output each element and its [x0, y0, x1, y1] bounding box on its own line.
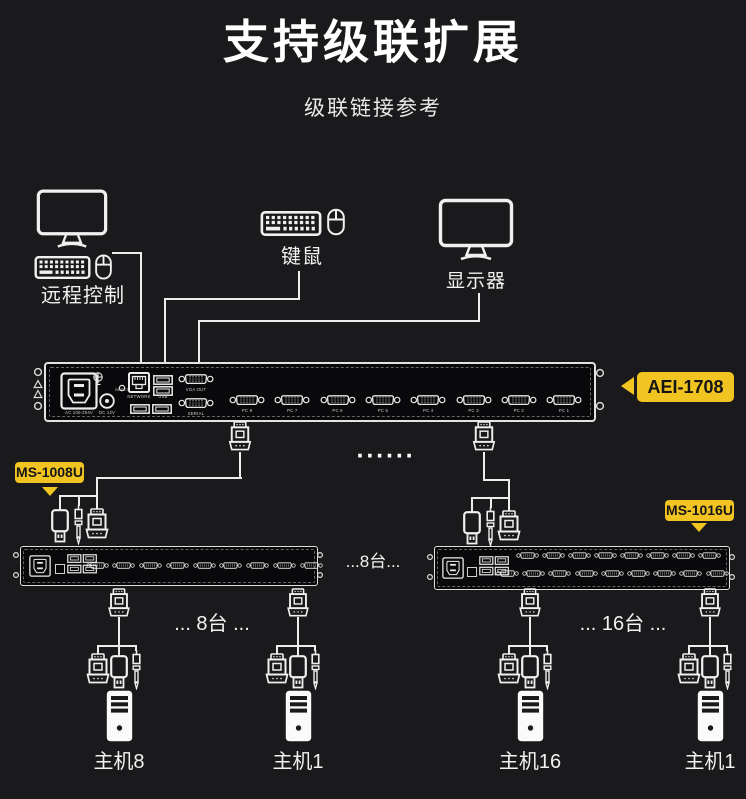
vga-port: [679, 567, 702, 580]
pc-port-label: PC 7: [274, 409, 310, 413]
main-switch-model-badge: AEI-1708: [637, 372, 734, 402]
vga-plug-icon: [697, 588, 723, 618]
pc-port-connector: [274, 392, 310, 408]
vga-port: [193, 559, 216, 572]
pc-port-row: PC 8PC 7PC 6PC 5PC 4PC 3PC 2PC 1: [46, 364, 594, 420]
vga-port: [166, 559, 189, 572]
right-switch-model-badge: MS-1016U: [665, 500, 734, 521]
vga-plug-icon: [264, 653, 290, 685]
pc-port-label: PC 8: [229, 409, 265, 413]
kbmouse-keyboard-icon: [260, 211, 322, 236]
pc-port-label: PC 3: [456, 409, 492, 413]
display-label: 显示器: [436, 270, 516, 294]
host-cable-bundle: [480, 588, 580, 691]
host-tower-icon: [285, 690, 312, 742]
host-label: 主机16: [485, 750, 575, 775]
cable-kbmouse-h: [164, 298, 300, 300]
usb-plug-icon: [701, 655, 719, 689]
host-label: 主机1: [665, 750, 746, 775]
host-tower-icon: [106, 690, 133, 742]
usb-plug-icon: [110, 655, 128, 689]
vga-port: [594, 549, 617, 562]
ac-inlet-icon: [29, 552, 51, 580]
vga-port: [246, 559, 269, 572]
pc-port-connector: [501, 392, 537, 408]
pc-port-connector: [365, 392, 401, 408]
vga-port: [646, 549, 669, 562]
pc-port-connector: [229, 392, 265, 408]
vga-port: [542, 549, 565, 562]
vga-plug-icon: [471, 421, 497, 452]
remote-label: 远程控制: [13, 284, 153, 309]
cable-monitor-v2: [198, 320, 200, 362]
page-title: 支持级联扩展: [0, 14, 746, 72]
vga-port: [219, 559, 242, 572]
vga-port: [620, 549, 643, 562]
cable-line: [471, 497, 473, 512]
vga-port: [112, 559, 135, 572]
ac-inlet-icon: [442, 554, 464, 582]
audio-plug-icon: [311, 650, 320, 690]
cable-line: [508, 645, 548, 647]
cable-line: [688, 645, 728, 647]
vga-port: [86, 559, 109, 572]
main-switch-rear-panel: AC 100-264V DC 12V RESET NETWORK USB VGA…: [44, 362, 596, 422]
vga-port: [273, 559, 296, 572]
vga-port: [300, 559, 323, 572]
cascade-left-v: [239, 452, 241, 479]
pc-port-connector: [456, 392, 492, 408]
cable-monitor-h: [198, 320, 480, 322]
cable-remote-h: [112, 252, 142, 254]
vga-port: [706, 567, 729, 580]
pc-port-label: PC 1: [546, 409, 582, 413]
remote-keyboard-icon: [34, 256, 91, 279]
vga-port: [568, 549, 591, 562]
kbmouse-mouse-icon: [327, 208, 345, 236]
vga-plug-icon: [285, 588, 311, 618]
cable-kbmouse-v1: [298, 271, 300, 300]
vga-port: [627, 567, 650, 580]
cable-line: [59, 495, 61, 510]
cable-kbmouse-v2: [164, 298, 166, 362]
host-label: 主机1: [253, 750, 343, 775]
pc-port-label: PC 4: [410, 409, 446, 413]
pc-port-label: PC 6: [320, 409, 356, 413]
audio-plug-icon: [486, 507, 495, 547]
usb-plug-icon: [521, 655, 539, 689]
cascade-cable-bundle: [47, 478, 127, 556]
vga-port: [548, 567, 571, 580]
pc-port-connector: [410, 392, 446, 408]
vga-plug-icon: [85, 653, 111, 685]
right-badge-pointer-icon: [691, 523, 707, 532]
pc-port-connector: [320, 392, 356, 408]
kbmouse-label: 键鼠: [262, 245, 342, 270]
audio-plug-icon: [543, 650, 552, 690]
dc-jack-icon: [467, 567, 477, 577]
badge-arrow-icon: [621, 377, 634, 395]
host-cable-bundle: [660, 588, 746, 691]
cascade-right-v: [483, 452, 485, 481]
cable-line: [709, 617, 711, 646]
vga-plug-icon: [496, 653, 522, 685]
cascade-cable-bundle: [459, 480, 539, 558]
vga-port: [672, 549, 695, 562]
vga-port: [698, 549, 721, 562]
vga-plug-icon: [496, 510, 522, 542]
cable-monitor-v1: [478, 293, 480, 322]
cable-remote-v: [140, 252, 142, 362]
left-row-ellipsis-label: ...8台...: [330, 551, 416, 572]
cable-line: [96, 478, 98, 496]
audio-plug-icon: [132, 650, 141, 690]
pc-port-label: PC 5: [365, 409, 401, 413]
host-cable-bundle: [248, 588, 348, 691]
infographic-canvas: 支持级联扩展 级联链接参考 远程控制 键鼠 显示器 AC 100-264V DC…: [0, 0, 746, 799]
pc-port-connector: [546, 392, 582, 408]
display-monitor-icon: [438, 198, 514, 264]
audio-plug-icon: [723, 650, 732, 690]
cable-line: [508, 480, 510, 498]
usb-plug-icon: [463, 511, 481, 545]
cable-line: [297, 617, 299, 646]
vga-plug-icon: [676, 653, 702, 685]
cable-line: [118, 617, 120, 646]
dc-jack-icon: [55, 564, 65, 574]
usb-plug-icon: [289, 655, 307, 689]
vga-plug-icon: [517, 588, 543, 618]
host-cable-bundle: [69, 588, 169, 691]
vga-port: [653, 567, 676, 580]
vga-plug-icon: [227, 421, 253, 452]
vga-plug-icon: [84, 508, 110, 540]
vga-port: [575, 567, 598, 580]
usb-plug-icon: [51, 509, 69, 543]
vga-plug-icon: [106, 588, 132, 618]
cable-line: [97, 645, 137, 647]
ellipsis-dots: ······: [356, 441, 416, 472]
cable-line: [276, 645, 316, 647]
audio-plug-icon: [74, 505, 83, 545]
remote-monitor-icon: [36, 188, 108, 252]
pc-port-label: PC 2: [501, 409, 537, 413]
host-label: 主机8: [74, 750, 164, 775]
vga-port: [522, 567, 545, 580]
host-tower-icon: [517, 690, 544, 742]
host-tower-icon: [697, 690, 724, 742]
remote-mouse-icon: [95, 254, 112, 280]
page-subtitle: 级联链接参考: [0, 96, 746, 122]
cable-line: [96, 495, 98, 509]
cable-line: [508, 497, 510, 511]
vga-port: [601, 567, 624, 580]
cable-line: [529, 617, 531, 646]
vga-port: [496, 567, 519, 580]
vga-port: [139, 559, 162, 572]
